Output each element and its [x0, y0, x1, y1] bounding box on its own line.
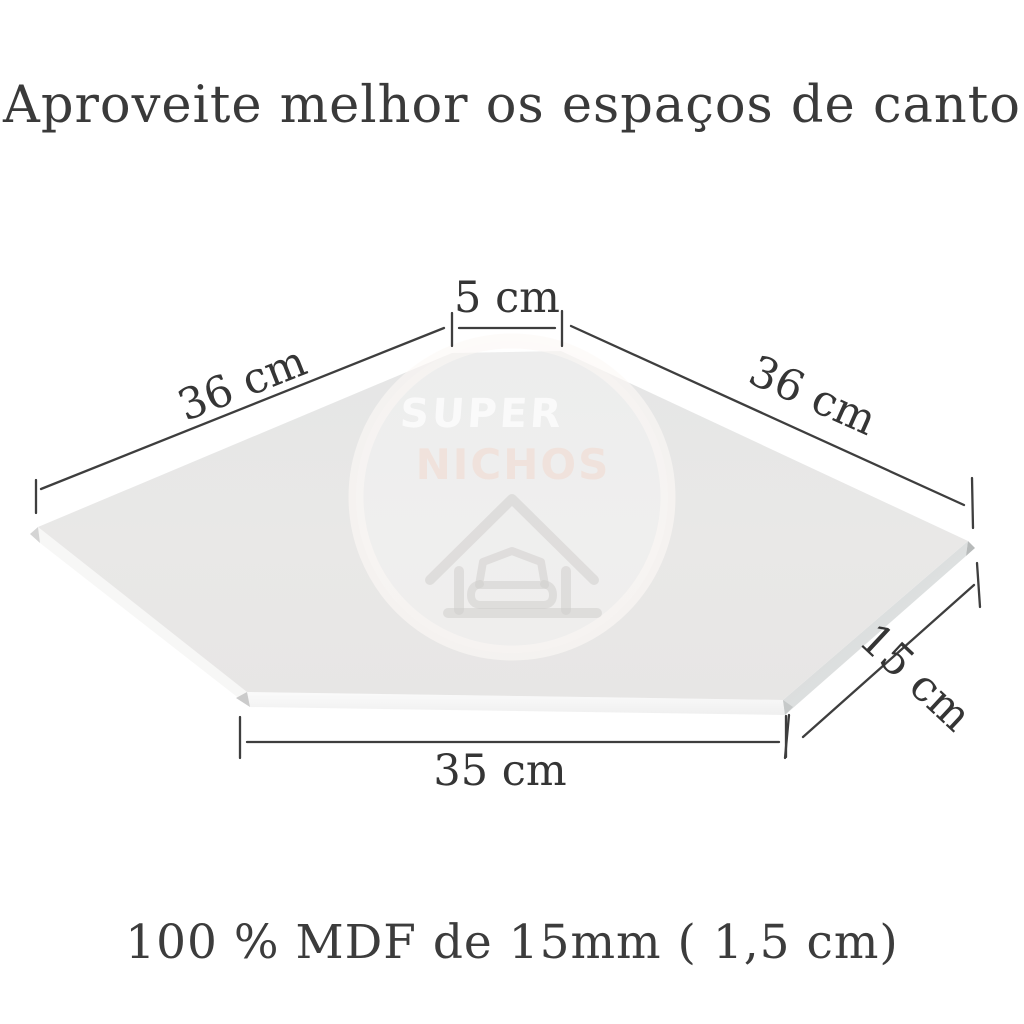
watermark-brand-line2: NICHOS	[416, 440, 611, 489]
material-note: 100 % MDF de 15mm ( 1,5 cm)	[0, 915, 1024, 970]
dim-tick	[977, 563, 980, 607]
dim-tick	[972, 478, 973, 528]
watermark-brand-line1: SUPER	[399, 391, 566, 437]
dimension-label-bottom: 35 cm	[433, 746, 566, 796]
shelf-diagram: SUPER NICHOS	[0, 0, 1024, 1024]
brand-watermark: SUPER NICHOS	[356, 341, 668, 653]
product-infographic: Aproveite melhor os espaços de canto	[0, 0, 1024, 1024]
dimension-label-left: 36 cm	[171, 336, 313, 431]
dimension-label-top: 5 cm	[454, 273, 560, 323]
dimension-label-right: 36 cm	[742, 346, 884, 446]
